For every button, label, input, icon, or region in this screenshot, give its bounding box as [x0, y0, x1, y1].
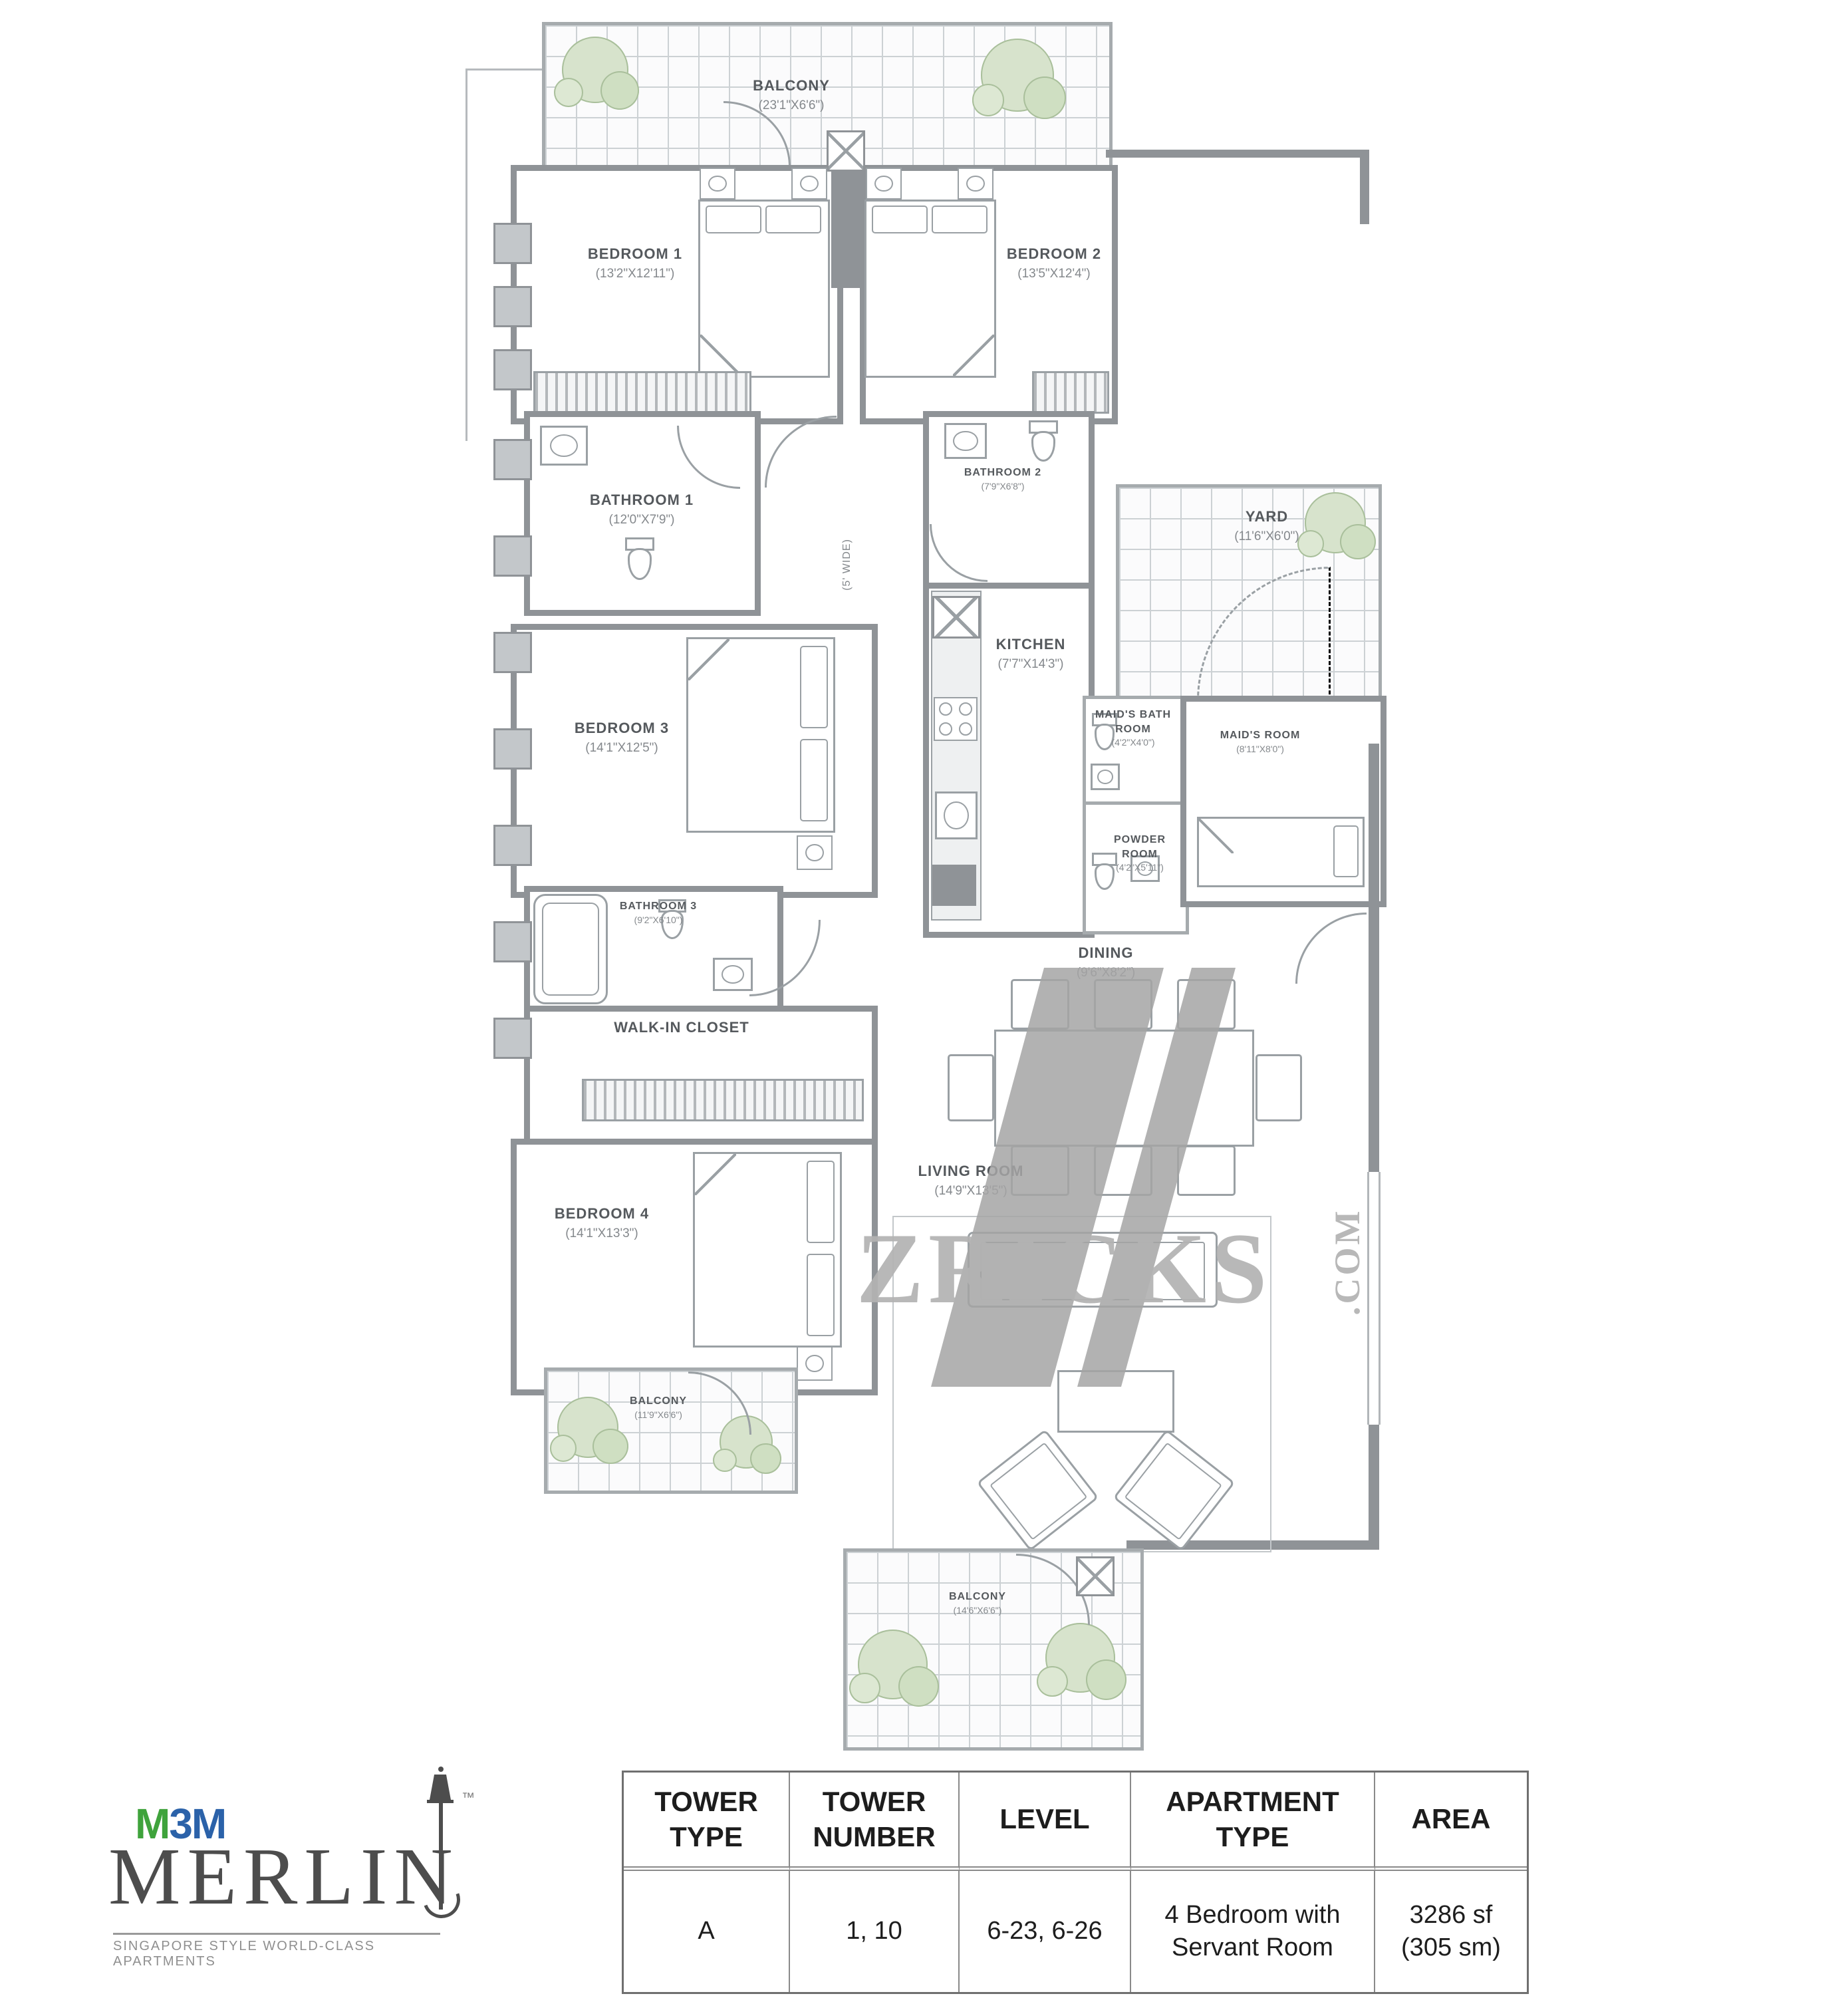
burner — [939, 722, 952, 736]
pillow-icon — [706, 206, 761, 233]
facade-line — [465, 69, 467, 441]
room-label-bathroom-3: BATHROOM 3 (9'2"X6'10") — [585, 899, 731, 926]
bed-fold — [688, 639, 729, 680]
burner — [959, 722, 972, 736]
room-name: KITCHEN — [996, 636, 1066, 652]
room-dims: (12'0"X7'9") — [542, 511, 741, 530]
watermark-suffix: .COM — [1327, 1209, 1368, 1316]
cell-apartment-type: 4 Bedroom with Servant Room — [1131, 1871, 1375, 1992]
wall — [831, 165, 860, 288]
nightstand-icon — [700, 168, 735, 200]
room-label-bedroom-3: BEDROOM 3 (14'1"X12'5") — [522, 717, 722, 758]
room-dims: (14'6"X6'6") — [894, 1604, 1061, 1617]
room-name: DINING — [1079, 944, 1134, 961]
plant-icon — [562, 37, 628, 103]
kitchen-sink-icon — [935, 791, 978, 839]
brand-name: MERLIN — [108, 1830, 460, 1924]
ledge-tab — [493, 535, 532, 577]
room-name: POWDER ROOM — [1114, 834, 1166, 860]
watermark-text: ZRICKS — [801, 1211, 1327, 1326]
room-label-walkin: WALK-IN CLOSET — [582, 1016, 781, 1038]
room-name: BATHROOM 2 — [964, 467, 1041, 478]
wall — [1360, 150, 1369, 224]
room-label-bedroom-4: BEDROOM 4 (14'1"X13'3") — [502, 1203, 702, 1244]
burner — [959, 702, 972, 716]
room-dims: (14'1"X13'3") — [502, 1224, 702, 1244]
ledge-tab — [493, 439, 532, 480]
room-label-balcony-left: BALCONY (11'9"X6'6") — [575, 1394, 741, 1421]
shaft-icon — [827, 130, 865, 172]
burner — [939, 702, 952, 716]
shaft-icon — [1076, 1556, 1115, 1596]
pillow-icon — [765, 206, 821, 233]
door-arc — [765, 416, 837, 488]
toilet-icon — [624, 537, 656, 580]
lamppost-icon — [438, 1767, 444, 1772]
room-dims: (8'11"X8'0") — [1190, 743, 1330, 756]
room-label-maids-bath: MAID'S BATH ROOM (4'2"X4'0") — [1091, 708, 1176, 749]
pillow-icon — [800, 739, 828, 821]
sink-icon — [713, 958, 753, 991]
sink-icon — [944, 423, 987, 459]
bed-fold — [1199, 819, 1234, 853]
col-header-area: AREA — [1375, 1773, 1527, 1871]
facade-line — [465, 69, 545, 71]
room-name: BATHROOM 1 — [590, 492, 694, 508]
room-label-bathroom-2: BATHROOM 2 (7'9"X6'8") — [930, 466, 1076, 492]
pillow-icon — [932, 206, 988, 233]
ledge-tab — [493, 825, 532, 866]
brand-divider — [113, 1933, 440, 1935]
cell-tower-number: 1, 10 — [790, 1871, 960, 1992]
ledge-tab — [493, 1018, 532, 1059]
room-dims: (7'7"X14'3") — [931, 655, 1130, 674]
door-arc — [749, 920, 821, 996]
col-header-tower-type: TOWER TYPE — [624, 1773, 790, 1871]
room-name: BEDROOM 4 — [555, 1205, 649, 1222]
spec-table: TOWER TYPE TOWER NUMBER LEVEL APARTMENT … — [622, 1771, 1529, 1994]
room-name: MAID'S BATH ROOM — [1095, 709, 1171, 735]
pillow-icon — [800, 646, 828, 728]
room-name: BATHROOM 3 — [620, 901, 697, 912]
ledge-tab — [493, 286, 532, 327]
lamppost-lantern — [430, 1775, 451, 1800]
sink-icon — [540, 426, 588, 466]
closet-shelves-icon — [582, 1079, 864, 1121]
room-label-yard: YARD (11'6"X6'0") — [1167, 505, 1367, 547]
room-name: YARD — [1246, 508, 1288, 525]
room-label-bedroom-2: BEDROOM 2 (13'5"X12'4") — [954, 243, 1154, 284]
bed-fold — [700, 335, 741, 376]
double-sink-icon — [932, 596, 980, 639]
fridge-icon — [932, 865, 976, 906]
nightstand-icon — [866, 168, 902, 200]
cell-area: 3286 sf (305 sm) — [1375, 1871, 1527, 1992]
stove-icon — [934, 697, 978, 741]
bed-icon — [864, 200, 996, 378]
trademark-symbol: ™ — [462, 1790, 475, 1806]
ledge-tab — [493, 632, 532, 673]
ledge-tab — [493, 728, 532, 770]
nightstand-icon — [797, 1346, 833, 1381]
corridor-width-note: (5' WIDE) — [841, 539, 853, 591]
toilet-icon — [1027, 420, 1059, 462]
room-name: MAID'S ROOM — [1220, 730, 1301, 741]
room-dims: (9'2"X6'10") — [585, 914, 731, 927]
pillow-icon — [1333, 825, 1359, 877]
nightstand-icon — [797, 835, 833, 870]
room-name: BALCONY — [753, 77, 830, 94]
plant-icon — [858, 1630, 928, 1699]
chair-icon — [1255, 1054, 1302, 1121]
ledge-tab — [493, 349, 532, 390]
col-header-level: LEVEL — [960, 1773, 1131, 1871]
door-arc — [1295, 913, 1367, 984]
cell-level: 6-23, 6-26 — [960, 1871, 1131, 1992]
room-dims: (13'2"X12'11") — [535, 265, 735, 284]
room-label-powder: POWDER ROOM (4'2"X5'11") — [1097, 833, 1182, 874]
room-label-bedroom-1: BEDROOM 1 (13'2"X12'11") — [535, 243, 735, 284]
wardrobe-icon — [533, 371, 751, 414]
bed-icon — [1197, 817, 1365, 887]
room-dims: (4'2"X4'0") — [1091, 736, 1176, 749]
ledge-tab — [493, 223, 532, 264]
toilet-bowl — [628, 548, 652, 580]
room-name: BEDROOM 1 — [588, 245, 682, 262]
plant-icon — [1045, 1623, 1115, 1693]
room-label-kitchen: KITCHEN (7'7"X14'3") — [931, 633, 1130, 674]
room-dims: (13'5"X12'4") — [954, 265, 1154, 284]
bed-fold — [695, 1154, 736, 1195]
nightstand-icon — [958, 168, 993, 200]
pillow-icon — [872, 206, 928, 233]
col-header-apartment-type: APARTMENT TYPE — [1131, 1773, 1375, 1871]
sink-icon — [1091, 764, 1120, 790]
bed-fold — [953, 335, 994, 376]
room-dims: (14'1"X12'5") — [522, 739, 722, 758]
room-dims: (11'9"X6'6") — [575, 1409, 741, 1421]
wall — [1106, 150, 1369, 158]
plant-icon — [981, 39, 1054, 112]
nightstand-icon — [791, 168, 827, 200]
wardrobe-icon — [1032, 371, 1109, 414]
room-name: BEDROOM 2 — [1007, 245, 1101, 262]
bed-icon — [698, 200, 830, 378]
room-label-balcony-top: BALCONY (23'1"X6'6") — [692, 74, 891, 116]
room-dims: (23'1"X6'6") — [692, 96, 891, 116]
room-name: BEDROOM 3 — [575, 720, 669, 736]
room-dims: (11'6"X6'0") — [1167, 527, 1367, 547]
col-header-tower-number: TOWER NUMBER — [790, 1773, 960, 1871]
wall — [1369, 744, 1379, 1550]
window-icon — [1367, 1172, 1381, 1425]
room-dims: (4'2"X5'11") — [1097, 861, 1182, 874]
cell-tower-type: A — [624, 1871, 790, 1992]
room-label-balcony-bottom: BALCONY (14'6"X6'6") — [894, 1590, 1061, 1616]
room-name: BALCONY — [630, 1395, 687, 1407]
room-label-bathroom-1: BATHROOM 1 (12'0"X7'9") — [542, 489, 741, 530]
floor-plan-page: BALCONY (23'1"X6'6") BEDROOM 1 (13'2"X12… — [0, 0, 1848, 1998]
toilet-bowl — [1031, 431, 1055, 462]
room-name: BALCONY — [949, 1591, 1006, 1602]
room-dims: (7'9"X6'8") — [930, 480, 1076, 493]
room-name: WALK-IN CLOSET — [614, 1019, 749, 1036]
ledge-tab — [493, 921, 532, 962]
room-label-maids-room: MAID'S ROOM (8'11"X8'0") — [1190, 728, 1330, 755]
brand-tagline: SINGAPORE STYLE WORLD-CLASS APARTMENTS — [113, 1939, 446, 1969]
